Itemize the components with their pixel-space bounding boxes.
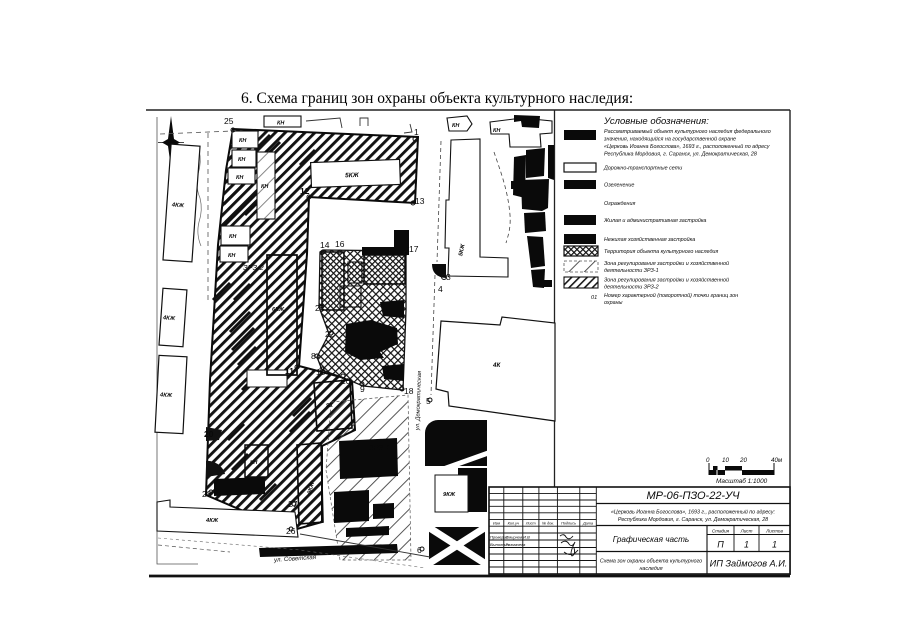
svg-text:Лист: Лист xyxy=(740,529,753,534)
svg-text:6. Схема границ зон охраны объ: 6. Схема границ зон охраны объекта культ… xyxy=(241,90,633,107)
svg-text:деятельности ЗРЗ-1: деятельности ЗРЗ-1 xyxy=(604,268,659,274)
svg-text:Республика Мордовия, г. Саранс: Республика Мордовия, г. Саранск, ул. Дем… xyxy=(604,152,757,158)
svg-text:4: 4 xyxy=(438,284,443,294)
svg-text:10: 10 xyxy=(722,457,729,464)
svg-text:КН: КН xyxy=(238,157,246,163)
svg-text:12: 12 xyxy=(300,186,310,196)
svg-text:КН: КН xyxy=(229,234,237,240)
svg-text:Зона регулирования застройки и: Зона регулирования застройки и хозяйстве… xyxy=(604,277,729,284)
svg-text:4КЖ: 4КЖ xyxy=(171,202,185,209)
svg-text:17: 17 xyxy=(409,244,419,254)
svg-text:9КЖ: 9КЖ xyxy=(443,492,456,498)
svg-text:6: 6 xyxy=(417,545,422,555)
svg-text:Нежилая хозяйственная застройк: Нежилая хозяйственная застройка xyxy=(604,236,695,243)
svg-text:20: 20 xyxy=(739,457,747,464)
svg-text:Территория объекта культурного: Территория объекта культурного наследия xyxy=(604,249,718,255)
svg-text:КН: КН xyxy=(493,128,501,134)
svg-text:13: 13 xyxy=(415,196,425,206)
svg-text:5: 5 xyxy=(426,396,431,406)
svg-text:18: 18 xyxy=(404,386,414,396)
svg-text:КН: КН xyxy=(452,123,460,129)
svg-text:Изм: Изм xyxy=(493,522,500,526)
svg-text:Дорожно-транспортные сети: Дорожно-транспортные сети xyxy=(603,166,682,172)
svg-text:значения, находящийся на госуд: значения, находящийся на государственной… xyxy=(603,136,736,143)
svg-text:1: 1 xyxy=(744,540,749,550)
svg-text:«Церковь Иоанна Богослова», 16: «Церковь Иоанна Богослова», 1693 г., рас… xyxy=(604,143,770,150)
svg-text:27: 27 xyxy=(288,499,298,509)
svg-text:Ограждения: Ограждения xyxy=(604,201,635,207)
svg-text:5КЖ: 5КЖ xyxy=(345,172,360,180)
svg-text:Рассматриваемый объект культур: Рассматриваемый объект культурного насле… xyxy=(604,128,771,135)
svg-text:26: 26 xyxy=(286,526,296,536)
svg-text:Подпись: Подпись xyxy=(561,522,576,526)
svg-text:Зона регулирования застройки и: Зона регулирования застройки и хозяйстве… xyxy=(604,260,729,267)
svg-text:1: 1 xyxy=(772,540,777,550)
svg-text:охраны: охраны xyxy=(604,300,623,306)
svg-text:Стадия: Стадия xyxy=(712,529,730,534)
svg-text:4КЖ: 4КЖ xyxy=(159,392,173,399)
svg-text:Графическая часть: Графическая часть xyxy=(613,535,689,544)
svg-text:Дата: Дата xyxy=(582,522,593,526)
svg-text:Условные обозначения:: Условные обозначения: xyxy=(603,116,709,127)
svg-text:1: 1 xyxy=(414,127,419,137)
svg-text:Кол.уч: Кол.уч xyxy=(508,522,519,526)
svg-text:деятельности ЗРЗ-2: деятельности ЗРЗ-2 xyxy=(604,285,659,291)
svg-text:МР-06-ПЗО-22-УЧ: МР-06-ПЗО-22-УЧ xyxy=(646,490,740,502)
svg-text:16: 16 xyxy=(335,239,345,249)
svg-text:Листов: Листов xyxy=(765,529,783,534)
svg-text:25: 25 xyxy=(224,116,234,126)
svg-text:Номер характерной (поворотной): Номер характерной (поворотной) точки гра… xyxy=(604,292,738,299)
svg-text:КН: КН xyxy=(261,184,269,190)
svg-text:«Церковь Иоанна Богослова», 16: «Церковь Иоанна Богослова», 1693 г., рас… xyxy=(611,509,776,516)
svg-text:Масштаб 1:1000: Масштаб 1:1000 xyxy=(716,477,768,485)
svg-text:ИП Займогов А.И.: ИП Займогов А.И. xyxy=(710,559,788,569)
svg-text:4КЖ: 4КЖ xyxy=(205,518,219,524)
svg-text:КН: КН xyxy=(250,460,258,466)
svg-text:20: 20 xyxy=(341,376,351,386)
svg-text:ЗРЗ-2: ЗРЗ-2 xyxy=(243,263,265,272)
svg-text:10: 10 xyxy=(316,367,326,377)
svg-text:8: 8 xyxy=(311,351,316,361)
svg-text:40м: 40м xyxy=(771,457,783,464)
svg-text:Жилая и административная застр: Жилая и административная застройка xyxy=(603,217,706,224)
svg-text:Лист: Лист xyxy=(525,522,536,526)
svg-text:ЗРЗ-1: ЗРЗ-1 xyxy=(369,443,390,452)
svg-text:24: 24 xyxy=(315,303,325,313)
svg-text:0: 0 xyxy=(706,457,710,464)
svg-text:КН: КН xyxy=(228,253,236,259)
svg-text:Республика Мордовия, г. Саранс: Республика Мордовия, г. Саранск, ул. Дем… xyxy=(618,517,768,523)
svg-text:01: 01 xyxy=(591,295,597,301)
svg-text:9: 9 xyxy=(360,384,365,394)
svg-text:11: 11 xyxy=(285,366,294,376)
svg-text:КН: КН xyxy=(239,138,247,144)
svg-text:Схема зон охраны объекта культ: Схема зон охраны объекта культурного xyxy=(600,559,702,565)
svg-text:КН: КН xyxy=(277,121,285,127)
svg-text:3: 3 xyxy=(446,272,451,282)
svg-text:28: 28 xyxy=(202,489,212,499)
svg-text:20: 20 xyxy=(204,429,214,439)
svg-text:Размачева: Размачева xyxy=(506,542,527,547)
svg-text:9К: 9К xyxy=(326,403,333,409)
svg-text:6КЖ: 6КЖ xyxy=(272,307,285,313)
svg-text:№ док.: № док. xyxy=(542,522,554,526)
svg-text:П: П xyxy=(717,540,724,550)
svg-text:Озеленение: Озеленение xyxy=(604,183,634,189)
svg-text:Смирнов И.В: Смирнов И.В xyxy=(506,535,531,540)
svg-text:КН: КН xyxy=(236,175,244,181)
svg-text:4КЖ: 4КЖ xyxy=(162,315,176,322)
svg-text:22: 22 xyxy=(325,329,335,339)
svg-text:наследия: наследия xyxy=(639,566,662,572)
svg-text:14: 14 xyxy=(320,240,330,250)
svg-text:4К: 4К xyxy=(492,362,501,369)
